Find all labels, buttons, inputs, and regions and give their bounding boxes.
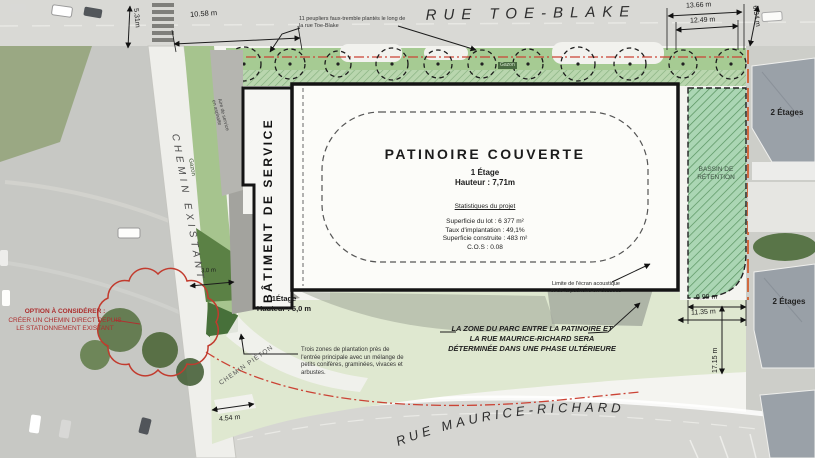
rink-height: Hauteur : 7,71m: [370, 178, 600, 188]
park-phase-callout: LA ZONE DU PARC ENTRE LA PATINOIRE ET LA…: [448, 324, 616, 354]
stats-list: Superficie du lot : 6 377 m² Taux d'impl…: [370, 218, 600, 252]
dim-3-0: 3.0 m: [201, 268, 216, 275]
service-building-text: 1Étage Hauteur : 5,0 m: [236, 294, 332, 314]
poplars-callout: 11 peupliers faux-tremble plantés le lon…: [299, 16, 409, 29]
retention-basin-label: BASSIN DE RÉTENTION: [684, 166, 748, 182]
stat-cos: C.O.S : 0.08: [370, 244, 600, 253]
stat-lot-area: Superficie du lot : 6 377 m²: [370, 218, 600, 227]
service-building-label: BÂTIMENT DE SERVICE: [261, 118, 275, 303]
dim-12-49: 12.49 m: [690, 16, 716, 24]
option-body: CRÉER UN CHEMIN DIRECT DEPUIS LE STATION…: [6, 317, 124, 333]
service-storeys: 1Étage: [236, 294, 332, 304]
grass-label-top: Gazon: [498, 62, 517, 69]
dim-10-58: 10.58 m: [190, 8, 218, 19]
toe-blake-planting-strip: [226, 42, 746, 86]
option-title: OPTION À CONSIDÉRER :: [6, 308, 124, 315]
rink-title: PATINOIRE COUVERTE: [370, 146, 600, 162]
service-height: Hauteur : 5,0 m: [236, 304, 332, 314]
stat-coverage: Taux d'implantation : 49,1%: [370, 227, 600, 236]
rink-storeys: 1 Étage: [370, 168, 600, 178]
acoustic-screen-callout: Limite de l'écran acoustique et de la pa…: [549, 281, 623, 295]
rink-text-block: PATINOIRE COUVERTE 1 Étage Hauteur : 7,7…: [370, 146, 600, 252]
dim-13-66: 13.66 m: [686, 1, 712, 9]
planting-zones-callout: Trois zones de plantation près de l'entr…: [301, 347, 409, 377]
house-label-top: 2 Étages: [762, 108, 812, 117]
stats-heading: Statistiques du projet: [370, 203, 600, 210]
house-label-bottom: 2 Étages: [764, 297, 814, 306]
dim-17-15: 17.15 m: [712, 348, 719, 373]
dim-9-99: 9.99 m: [696, 294, 718, 302]
option-callout: OPTION À CONSIDÉRER : CRÉER UN CHEMIN DI…: [6, 308, 124, 333]
dim-11-35: 11.35 m: [691, 308, 716, 316]
stat-built-area: Superficie construite : 483 m²: [370, 235, 600, 244]
site-plan-canvas: RUE MAURICE-RICHARD RUE TOE-BLAKE CHEMIN…: [0, 0, 815, 458]
